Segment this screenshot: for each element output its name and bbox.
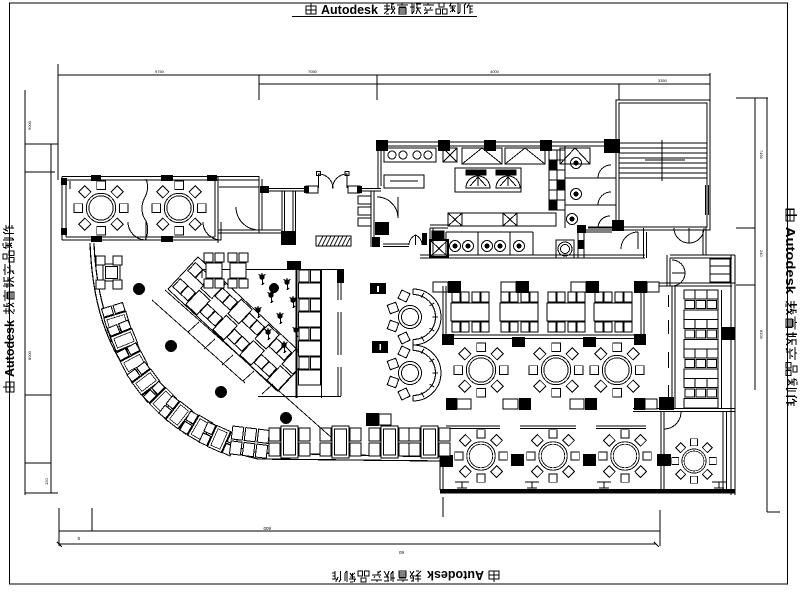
- svg-text:8000: 8000: [27, 350, 32, 360]
- svg-text:8100: 8100: [759, 330, 764, 340]
- svg-text:3350: 3350: [658, 78, 668, 83]
- svg-text:9750: 9750: [155, 69, 165, 74]
- svg-text:120: 120: [44, 478, 49, 485]
- svg-text:5: 5: [77, 536, 80, 541]
- svg-text:60: 60: [398, 550, 404, 555]
- svg-text:4000: 4000: [490, 69, 500, 74]
- svg-text:7050: 7050: [308, 69, 318, 74]
- svg-text:9000: 9000: [27, 120, 32, 130]
- svg-text:600: 600: [263, 526, 271, 531]
- svg-text:240: 240: [759, 250, 764, 257]
- svg-text:7450: 7450: [759, 150, 764, 160]
